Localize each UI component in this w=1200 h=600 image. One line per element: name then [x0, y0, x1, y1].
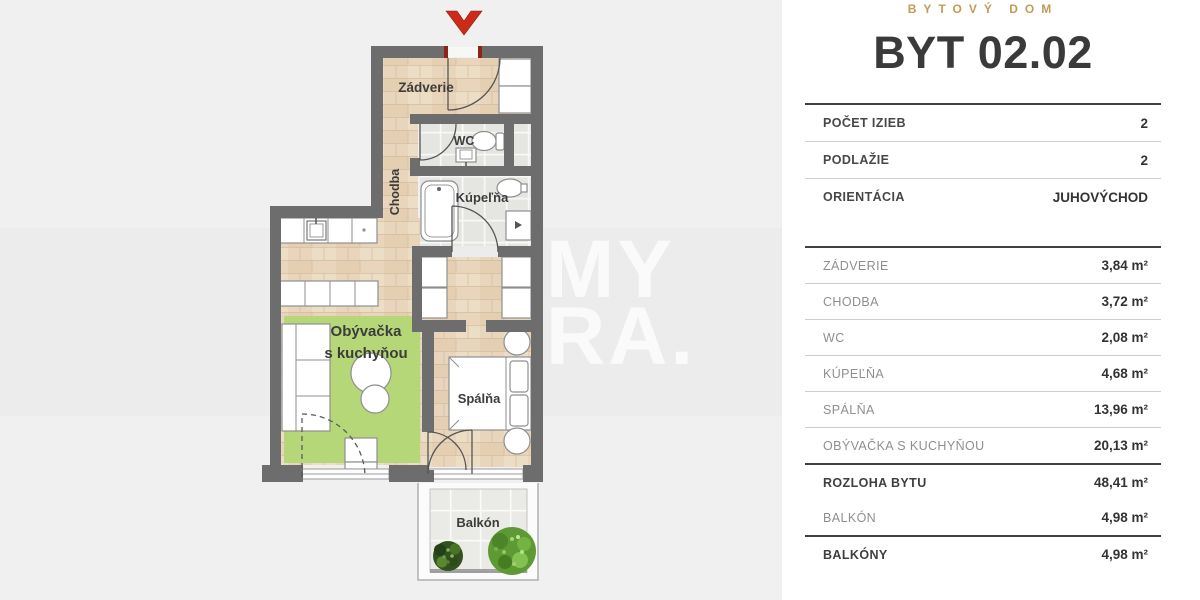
label-zadverie: Zádverie [398, 80, 454, 95]
svg-text:RA.: RA. [546, 291, 696, 382]
row-label: ORIENTÁCIA [823, 190, 905, 204]
row-value: 13,96 m² [1094, 402, 1148, 417]
watermark: MY RA. [546, 224, 696, 382]
table-row: KÚPEĽŇA 4,68 m² [805, 356, 1161, 392]
row-value: 4,68 m² [1101, 366, 1148, 381]
area-table: ZÁDVERIE 3,84 m² CHODBA 3,72 m² WC 2,08 … [805, 246, 1161, 572]
label-obyvacka-line1: Obývačka [331, 323, 403, 340]
row-label: WC [823, 331, 845, 345]
apartment-info-panel: BYTOVÝ DOM BYT 02.02 POČET IZIEB 2 PODLA… [805, 0, 1161, 600]
row-value: 4,98 m² [1101, 510, 1148, 525]
page: Zádverie Chodba WC Kúpeľňa Obývačka s ku… [0, 0, 1200, 600]
table-row: POČET IZIEB 2 [805, 105, 1161, 142]
row-label: BALKÓN [823, 511, 876, 525]
row-value: 2 [1140, 153, 1148, 168]
row-value: 2 [1140, 116, 1148, 131]
brand-text: BYTOVÝ DOM [805, 2, 1161, 16]
row-value: 2,08 m² [1101, 330, 1148, 345]
row-label: ZÁDVERIE [823, 259, 889, 273]
row-label: PODLAŽIE [823, 153, 889, 167]
row-label: KÚPEĽŇA [823, 367, 884, 381]
label-wc: WC [454, 134, 475, 148]
label-balkon: Balkón [456, 515, 499, 530]
label-spalna: Spálňa [458, 391, 501, 406]
washing-machine-icon [506, 211, 531, 240]
plant-small-icon [433, 541, 463, 571]
row-label: CHODBA [823, 295, 879, 309]
row-label: OBÝVAČKA S KUCHYŇOU [823, 439, 985, 453]
row-label: BALKÓNY [823, 548, 888, 562]
table-row: PODLAŽIE 2 [805, 142, 1161, 179]
table-row: ORIENTÁCIA JUHOVÝCHOD [805, 179, 1161, 215]
label-obyvacka-line2: s kuchyňou [324, 345, 407, 362]
row-label: POČET IZIEB [823, 116, 906, 130]
row-value: 3,72 m² [1101, 294, 1148, 309]
kitchen-island [280, 281, 378, 306]
entry-closet [499, 59, 531, 113]
table-row: BALKÓN 4,98 m² [805, 500, 1161, 537]
sofa [282, 324, 330, 431]
table-row: CHODBA 3,72 m² [805, 284, 1161, 320]
row-value: JUHOVÝCHOD [1053, 190, 1148, 205]
page-title: BYT 02.02 [805, 30, 1161, 75]
row-value: 48,41 m² [1094, 475, 1148, 490]
row-value: 20,13 m² [1094, 438, 1148, 453]
row-value: 3,84 m² [1101, 258, 1148, 273]
row-label: ROZLOHA BYTU [823, 476, 927, 490]
table-row: WC 2,08 m² [805, 320, 1161, 356]
table-row: BALKÓNY 4,98 m² [805, 537, 1161, 572]
floorplan: Zádverie Chodba WC Kúpeľňa Obývačka s ku… [0, 0, 782, 600]
label-kupelna: Kúpeľňa [456, 190, 509, 205]
table-row: ZÁDVERIE 3,84 m² [805, 248, 1161, 284]
kitchen-counter [280, 218, 377, 243]
toilet-icon [472, 132, 504, 151]
plant-large-icon [488, 527, 536, 575]
table-row: OBÝVAČKA S KUCHYŇOU 20,13 m² [805, 428, 1161, 465]
table-row: SPÁLŇA 13,96 m² [805, 392, 1161, 428]
table-row: ROZLOHA BYTU 48,41 m² [805, 465, 1161, 500]
row-value: 4,98 m² [1101, 547, 1148, 562]
info-table: POČET IZIEB 2 PODLAŽIE 2 ORIENTÁCIA JUHO… [805, 103, 1161, 215]
row-label: SPÁLŇA [823, 403, 875, 417]
label-chodba: Chodba [388, 168, 402, 216]
